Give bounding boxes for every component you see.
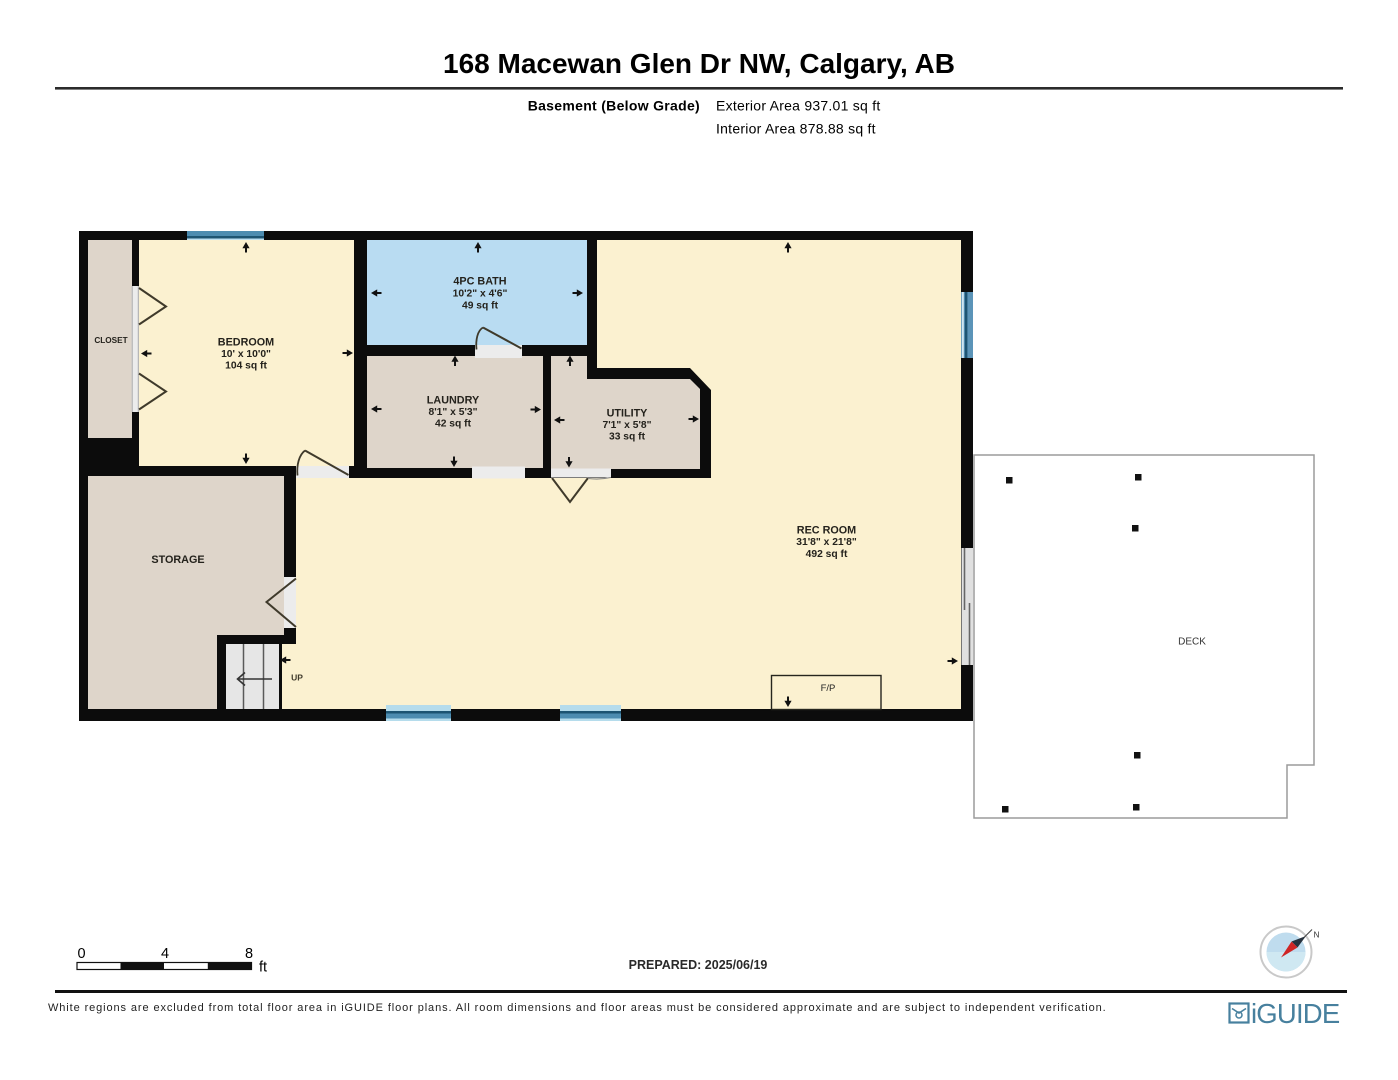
svg-text:Basement (Below Grade): Basement (Below Grade) <box>528 98 700 114</box>
svg-text:42 sq ft: 42 sq ft <box>435 419 472 430</box>
svg-text:49 sq ft: 49 sq ft <box>462 301 499 312</box>
svg-text:31'8" x 21'8": 31'8" x 21'8" <box>796 537 857 548</box>
svg-text:10'2" x 4'6": 10'2" x 4'6" <box>453 289 508 300</box>
svg-text:STORAGE: STORAGE <box>151 554 204 566</box>
svg-text:White regions are excluded fro: White regions are excluded from total fl… <box>48 1002 1107 1014</box>
svg-text:4: 4 <box>161 946 169 962</box>
svg-text:0: 0 <box>77 946 85 962</box>
svg-text:33 sq ft: 33 sq ft <box>609 432 646 443</box>
svg-text:REC ROOM: REC ROOM <box>797 525 856 537</box>
svg-text:492 sq ft: 492 sq ft <box>806 549 848 560</box>
svg-text:UTILITY: UTILITY <box>607 408 649 420</box>
svg-text:PREPARED: 2025/06/19: PREPARED: 2025/06/19 <box>629 958 768 972</box>
svg-text:104 sq ft: 104 sq ft <box>225 361 267 372</box>
svg-text:Interior Area 878.88 sq ft: Interior Area 878.88 sq ft <box>716 121 876 137</box>
svg-text:iGUIDE: iGUIDE <box>1251 998 1340 1029</box>
svg-text:CLOSET: CLOSET <box>94 336 127 345</box>
svg-text:N: N <box>1314 930 1320 940</box>
svg-text:Exterior Area 937.01 sq ft: Exterior Area 937.01 sq ft <box>716 98 880 114</box>
svg-text:DECK: DECK <box>1178 637 1206 648</box>
svg-text:LAUNDRY: LAUNDRY <box>427 395 480 407</box>
svg-text:4PC BATH: 4PC BATH <box>453 276 506 288</box>
svg-text:F/P: F/P <box>821 683 836 694</box>
svg-text:BEDROOM: BEDROOM <box>218 337 274 349</box>
svg-text:8'1" x 5'3": 8'1" x 5'3" <box>428 407 477 418</box>
svg-text:7'1" x 5'8": 7'1" x 5'8" <box>602 420 651 431</box>
svg-text:8: 8 <box>245 946 253 962</box>
svg-text:UP: UP <box>291 673 303 683</box>
svg-text:ft: ft <box>259 960 267 976</box>
svg-text:10' x 10'0": 10' x 10'0" <box>221 349 271 360</box>
svg-text:168 Macewan Glen Dr NW, Calgar: 168 Macewan Glen Dr NW, Calgary, AB <box>443 48 955 79</box>
